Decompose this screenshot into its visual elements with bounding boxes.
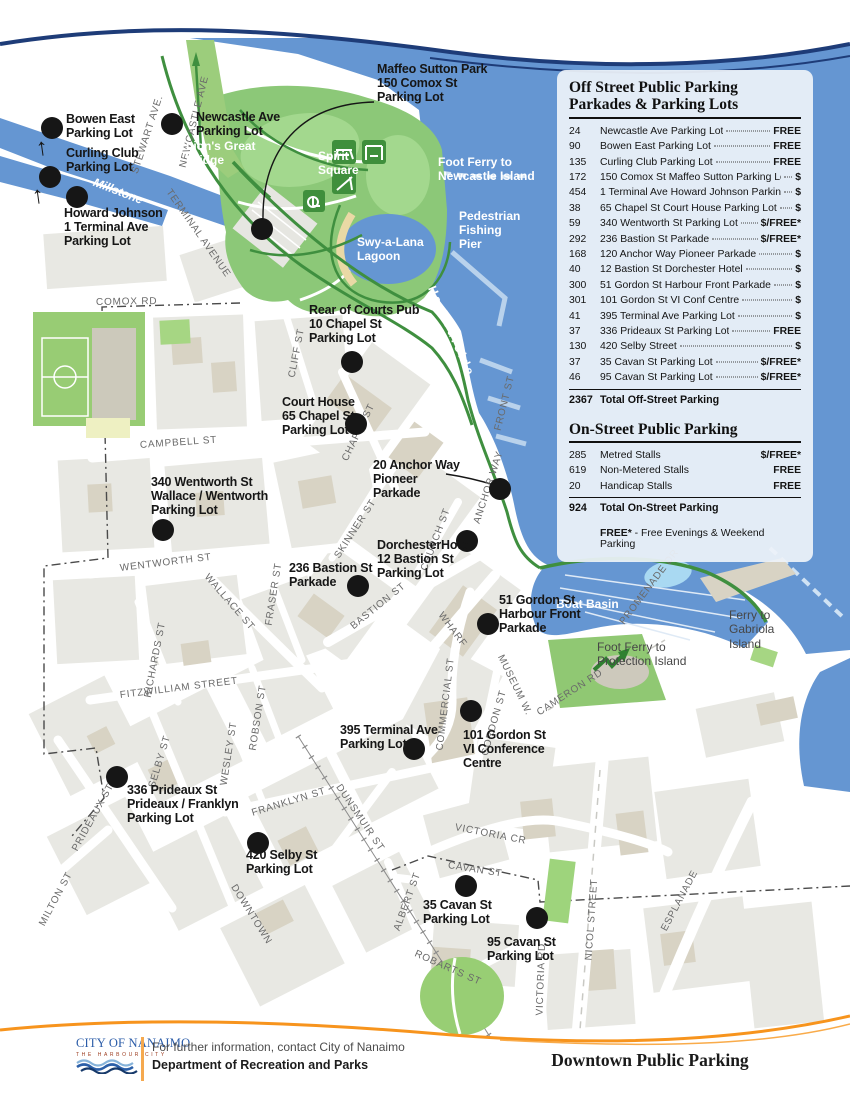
parking-label: 395 Terminal Ave Parking Lot xyxy=(340,723,438,751)
stall-count: 38 xyxy=(569,201,600,216)
free-parking-note: FREE* - Free Evenings & Weekend Parking xyxy=(569,528,801,550)
off-street-row: 30051 Gordon St Harbour Front Parkade$ xyxy=(569,278,801,293)
total-label: Total Off-Street Parking xyxy=(600,392,719,408)
stall-count: 285 xyxy=(569,448,600,463)
parking-label: 236 Bastion St Parkade xyxy=(289,561,372,589)
stall-price: FREE xyxy=(773,479,801,494)
footer-contact-info: For further information, contact City of… xyxy=(152,1040,405,1072)
gabriola-ferry-label: Ferry to Gabriola Island xyxy=(729,608,774,651)
off-street-row: 292236 Bastion St Parkade$/FREE* xyxy=(569,232,801,247)
parking-label: 95 Cavan St Parking Lot xyxy=(487,935,556,963)
pedestrian-fishing-pier-label: Pedestrian Fishing Pier xyxy=(459,210,520,251)
parking-dot-35-cavan xyxy=(455,875,477,897)
off-street-row: 4541 Terminal Ave Howard Johnson Parking… xyxy=(569,185,801,200)
total-stall-count: 924 xyxy=(569,500,600,516)
lot-price: $/FREE* xyxy=(761,216,801,231)
off-street-row: 168120 Anchor Way Pioneer Parkade$ xyxy=(569,247,801,262)
on-street-row: 619Non-Metered StallsFREE xyxy=(569,463,801,478)
off-street-title-line2: Parkades & Parking Lots xyxy=(569,96,738,113)
off-street-row: 4012 Bastion St Dorchester Hotel$ xyxy=(569,262,801,277)
protection-island-ferry-label: Foot Ferry to Protection Island xyxy=(597,640,686,669)
stall-count: 37 xyxy=(569,324,600,339)
off-street-row: 3865 Chapel St Court House Parking Lot$ xyxy=(569,201,801,216)
lot-price: $ xyxy=(795,339,801,354)
off-street-row: 130420 Selby Street$ xyxy=(569,339,801,354)
stall-count: 135 xyxy=(569,155,600,170)
parking-dot-newcastle-ave xyxy=(161,113,183,135)
logo-city-name: CITY OF NANAIMO xyxy=(76,1036,146,1051)
lot-price: $ xyxy=(795,262,801,277)
lot-name: 95 Cavan St Parking Lot xyxy=(600,370,713,385)
off-street-row: 301101 Gordon St VI Conf Centre$ xyxy=(569,293,801,308)
lot-name: 101 Gordon St VI Conf Centre xyxy=(600,293,739,308)
swy-a-lana-lagoon-label: Swy-a-Lana Lagoon xyxy=(357,236,424,264)
lot-price: $ xyxy=(795,170,801,185)
parking-dot-harbour-front xyxy=(477,613,499,635)
stall-count: 454 xyxy=(569,185,600,200)
on-street-total-row: 924 Total On-Street Parking xyxy=(569,497,801,516)
stall-count: 90 xyxy=(569,139,600,154)
parking-label: DorchesterHotel 12 Bastion St Parking Lo… xyxy=(377,538,471,580)
parking-label: Maffeo Sutton Park 150 Comox St Parking … xyxy=(377,62,487,104)
lot-name: 1 Terminal Ave Howard Johnson Parking Lo… xyxy=(600,185,781,200)
on-street-heading: On-Street Public Parking xyxy=(569,421,801,443)
stall-type: Metred Stalls xyxy=(600,448,661,463)
contact-line: For further information, contact City of… xyxy=(152,1040,405,1054)
off-street-row: 37336 Prideaux St Parking LotFREE xyxy=(569,324,801,339)
parking-label: Curling Club Parking Lot xyxy=(66,146,139,174)
department-line: Department of Recreation and Parks xyxy=(152,1058,405,1072)
stall-count: 300 xyxy=(569,278,600,293)
stall-count: 59 xyxy=(569,216,600,231)
parking-legend-panel: Off Street Public Parking Parkades & Par… xyxy=(557,70,813,562)
stall-count: 24 xyxy=(569,124,600,139)
lot-price: $ xyxy=(795,185,801,200)
dot-leader xyxy=(714,146,770,147)
dot-leader xyxy=(784,192,792,193)
foot-ferry-newcastle-label: Foot Ferry to Newcastle Island xyxy=(438,156,535,184)
lot-name: 340 Wentworth St Parking Lot xyxy=(600,216,738,231)
stall-count: 301 xyxy=(569,293,600,308)
dot-leader xyxy=(680,346,792,347)
lot-name: 336 Prideaux St Parking Lot xyxy=(600,324,729,339)
parking-dot-courts-pub xyxy=(341,351,363,373)
stall-count: 37 xyxy=(569,355,600,370)
off-street-row: 24Newcastle Ave Parking LotFREE xyxy=(569,124,801,139)
parking-dot-maffeo-sutton xyxy=(251,218,273,240)
stall-count: 46 xyxy=(569,370,600,385)
downtown-parking-map-page: STEWART AVE. NEWCASTLE AVE TERMINAL AVEN… xyxy=(0,0,850,1100)
lot-name: Newcastle Ave Parking Lot xyxy=(600,124,723,139)
parking-dot-howard-johnson xyxy=(66,186,88,208)
stall-count: 168 xyxy=(569,247,600,262)
dot-leader xyxy=(780,207,792,208)
off-street-row: 135Curling Club Parking LotFREE xyxy=(569,155,801,170)
lot-price: $ xyxy=(795,247,801,262)
lot-name: 236 Bastion St Parkade xyxy=(600,232,709,247)
dot-leader xyxy=(774,284,792,285)
parking-dot-prideaux xyxy=(106,766,128,788)
parking-label: Court House 65 Chapel St Parking Lot xyxy=(282,395,355,437)
stall-type: Non-Metered Stalls xyxy=(600,463,689,478)
off-street-row: 59340 Wentworth St Parking Lot$/FREE* xyxy=(569,216,801,231)
dot-leader xyxy=(726,130,770,131)
lot-price: $ xyxy=(795,293,801,308)
off-street-row: 41395 Terminal Ave Parking Lot$ xyxy=(569,309,801,324)
dot-leader xyxy=(716,361,758,362)
parking-label: 420 Selby St Parking Lot xyxy=(246,848,317,876)
parking-dot-95-cavan xyxy=(526,907,548,929)
lot-name: Bowen East Parking Lot xyxy=(600,139,711,154)
lot-name: 420 Selby Street xyxy=(600,339,677,354)
logo-waves-icon xyxy=(76,1058,138,1074)
stall-count: 40 xyxy=(569,262,600,277)
stall-count: 619 xyxy=(569,463,600,478)
lot-name: 395 Terminal Ave Parking Lot xyxy=(600,309,735,324)
dot-leader xyxy=(712,238,757,239)
lot-name: 35 Cavan St Parking Lot xyxy=(600,355,713,370)
parking-label: 340 Wentworth St Wallace / Wentworth Par… xyxy=(151,475,268,517)
parking-dot-wentworth xyxy=(152,519,174,541)
footer-divider xyxy=(141,1037,144,1081)
off-street-total-row: 2367 Total Off-Street Parking xyxy=(569,389,801,408)
dot-leader xyxy=(716,377,758,378)
parking-dot-conference-centre xyxy=(460,700,482,722)
stall-price: FREE xyxy=(773,463,801,478)
dot-leader xyxy=(738,315,792,316)
dot-leader xyxy=(742,300,792,301)
lot-name: 65 Chapel St Court House Parking Lot xyxy=(600,201,777,216)
spirit-square-label: Spirit Square xyxy=(318,150,359,178)
parking-label: Bowen East Parking Lot xyxy=(66,112,135,140)
stall-count: 130 xyxy=(569,339,600,354)
off-street-row: 3735 Cavan St Parking Lot$/FREE* xyxy=(569,355,801,370)
lot-price: $ xyxy=(795,309,801,324)
lot-name: 150 Comox St Maffeo Sutton Parking Lot xyxy=(600,170,781,185)
dot-leader xyxy=(784,176,792,177)
total-label: Total On-Street Parking xyxy=(600,500,719,516)
lot-price: $ xyxy=(795,201,801,216)
lot-price: $/FREE* xyxy=(761,370,801,385)
parking-dot-pioneer-parkade xyxy=(489,478,511,500)
parking-label: 336 Prideaux St Prideaux / Franklyn Park… xyxy=(127,783,239,825)
street-label: COMOX RD xyxy=(96,296,158,308)
dot-leader xyxy=(746,269,793,270)
on-street-title: On-Street Public Parking xyxy=(569,421,738,438)
lot-price: FREE xyxy=(773,124,801,139)
off-street-row: 90Bowen East Parking LotFREE xyxy=(569,139,801,154)
parking-label: 51 Gordon St Harbour Front Parkade xyxy=(499,593,580,635)
lot-price: $/FREE* xyxy=(761,232,801,247)
on-street-row: 285Metred Stalls$/FREE* xyxy=(569,448,801,463)
parking-label: 101 Gordon St VI Conference Centre xyxy=(463,728,546,770)
stall-count: 292 xyxy=(569,232,600,247)
parking-label: Howard Johnson 1 Terminal Ave Parking Lo… xyxy=(64,206,163,248)
stall-count: 172 xyxy=(569,170,600,185)
parking-label: Rear of Courts Pub 10 Chapel St Parking … xyxy=(309,303,419,345)
lot-price: FREE xyxy=(773,155,801,170)
dot-leader xyxy=(741,223,758,224)
dot-leader xyxy=(716,161,771,162)
parking-label: 35 Cavan St Parking Lot xyxy=(423,898,492,926)
stall-price: $/FREE* xyxy=(761,448,801,463)
lot-price: $ xyxy=(795,278,801,293)
lot-price: FREE xyxy=(773,324,801,339)
off-street-title-line1: Off Street Public Parking xyxy=(569,79,738,96)
dot-leader xyxy=(732,331,770,332)
stall-count: 20 xyxy=(569,479,600,494)
document-title: Downtown Public Parking xyxy=(540,1050,760,1071)
lot-name: 12 Bastion St Dorchester Hotel xyxy=(600,262,743,277)
off-street-row: 172150 Comox St Maffeo Sutton Parking Lo… xyxy=(569,170,801,185)
off-street-heading: Off Street Public Parking Parkades & Par… xyxy=(569,79,801,119)
off-street-row: 4695 Cavan St Parking Lot$/FREE* xyxy=(569,370,801,385)
parking-label: 20 Anchor Way Pioneer Parkade xyxy=(373,458,460,500)
lot-price: $/FREE* xyxy=(761,355,801,370)
stall-type: Handicap Stalls xyxy=(600,479,672,494)
note-free-asterisk: FREE* xyxy=(600,528,632,539)
lot-name: 51 Gordon St Harbour Front Parkade xyxy=(600,278,771,293)
lions-great-bridge-label: Lion's Great Bridge xyxy=(186,140,256,168)
lot-name: 120 Anchor Way Pioneer Parkade xyxy=(600,247,756,262)
lot-price: FREE xyxy=(773,139,801,154)
city-of-nanaimo-logo: CITY OF NANAIMO THE HARBOUR CITY xyxy=(76,1036,146,1079)
stall-count: 41 xyxy=(569,309,600,324)
total-stall-count: 2367 xyxy=(569,392,600,408)
parking-label: Newcastle Ave Parking Lot xyxy=(196,110,280,138)
dot-leader xyxy=(759,253,792,254)
lot-name: Curling Club Parking Lot xyxy=(600,155,713,170)
on-street-row: 20Handicap StallsFREE xyxy=(569,479,801,494)
